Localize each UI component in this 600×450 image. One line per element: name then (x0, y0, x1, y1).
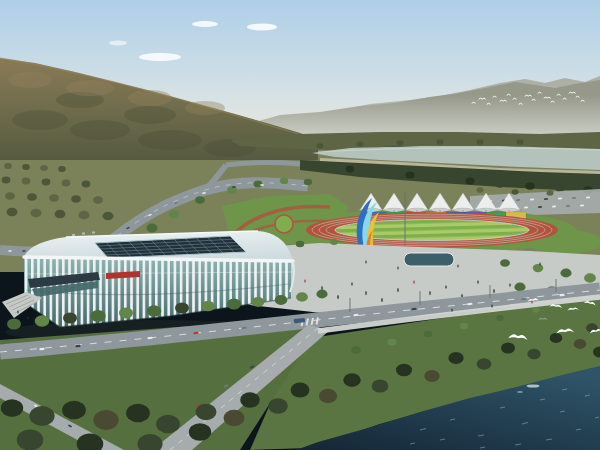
tree (42, 179, 51, 186)
tree (240, 392, 260, 407)
tree (280, 178, 288, 185)
car (566, 205, 570, 207)
tree (316, 290, 327, 299)
tree (1, 399, 23, 417)
sports-complex-rendering (0, 0, 600, 450)
tree (437, 139, 444, 145)
tree (119, 308, 133, 319)
tree (5, 192, 15, 200)
car (8, 250, 11, 251)
tree (126, 404, 150, 423)
tree (291, 383, 310, 398)
tree (147, 305, 162, 317)
person (365, 261, 366, 264)
tree (357, 141, 364, 147)
tree (547, 190, 554, 196)
tree (22, 178, 31, 185)
tree (63, 313, 77, 324)
car (559, 294, 564, 297)
person (337, 295, 338, 299)
person (539, 262, 540, 265)
tree (7, 208, 18, 217)
tree (460, 323, 468, 330)
tree (55, 210, 66, 219)
tree (82, 181, 91, 188)
tree (62, 401, 86, 420)
tree (103, 212, 114, 221)
tree (2, 177, 11, 184)
tree (514, 283, 525, 292)
tree (304, 179, 312, 186)
person (457, 265, 458, 268)
person (429, 291, 430, 294)
tree (317, 143, 324, 149)
car (524, 207, 528, 209)
tree (574, 339, 587, 349)
tree (397, 140, 404, 146)
person (304, 279, 305, 282)
tree (27, 193, 37, 201)
tree (376, 169, 384, 176)
tree (351, 346, 361, 354)
tree (253, 180, 262, 187)
tree (146, 224, 157, 233)
tree (501, 343, 515, 354)
car (232, 186, 236, 188)
person (397, 288, 398, 291)
car (586, 197, 590, 199)
tree (330, 239, 338, 245)
person (381, 298, 382, 302)
tree (62, 180, 71, 187)
person (365, 291, 366, 294)
person (445, 285, 446, 288)
tree (477, 358, 492, 370)
tree (156, 415, 180, 434)
tree (346, 166, 354, 173)
tree (227, 299, 241, 310)
tree (224, 410, 245, 427)
tree (90, 310, 105, 322)
tree (533, 307, 540, 313)
car (39, 348, 44, 351)
car (260, 184, 264, 186)
tree (17, 430, 44, 450)
tree (372, 379, 389, 392)
tree (560, 269, 571, 278)
tree (517, 139, 524, 145)
tree (169, 210, 180, 218)
person (321, 286, 322, 289)
tree (29, 406, 54, 426)
tree (189, 423, 211, 441)
tree (40, 165, 48, 171)
reflecting-pool (404, 253, 454, 266)
tree (93, 410, 118, 430)
tree (387, 338, 396, 345)
tree (448, 352, 463, 364)
tree (396, 364, 412, 377)
tree (196, 404, 217, 421)
tree (424, 331, 432, 338)
person (413, 280, 414, 283)
tree (296, 292, 308, 301)
tree (550, 333, 563, 343)
tree (275, 295, 288, 305)
tree (512, 189, 519, 195)
tree (195, 196, 205, 204)
car (516, 199, 520, 201)
tree (4, 163, 12, 169)
running-track (306, 213, 558, 248)
tree (495, 180, 505, 188)
person (27, 317, 28, 320)
person (493, 289, 494, 292)
tree (22, 164, 30, 170)
rendering-image (0, 0, 600, 450)
tree (500, 259, 510, 267)
tree (477, 187, 484, 193)
person (451, 308, 452, 311)
tree (465, 177, 474, 184)
tree (319, 389, 337, 403)
tree (31, 209, 42, 218)
tree (435, 174, 444, 181)
person (531, 300, 532, 303)
tree (49, 194, 59, 202)
person (17, 311, 18, 314)
car (22, 250, 25, 251)
tree (71, 195, 81, 203)
tree (477, 139, 484, 145)
tree (58, 166, 66, 172)
car (530, 199, 534, 201)
tree (252, 297, 265, 307)
tree (175, 303, 189, 314)
car (552, 206, 556, 208)
tree (35, 315, 50, 327)
tree (268, 398, 288, 413)
car (538, 206, 542, 208)
car (544, 198, 548, 200)
car (572, 197, 576, 199)
tree (525, 182, 535, 190)
tree (7, 319, 21, 330)
tree (533, 264, 544, 272)
person (351, 282, 352, 285)
tree (584, 273, 596, 282)
car (558, 198, 562, 200)
person (397, 267, 398, 270)
person (491, 304, 492, 307)
tree (343, 373, 361, 387)
car (580, 205, 584, 207)
tree (201, 301, 214, 311)
tree (93, 196, 103, 204)
car (521, 298, 526, 301)
tree (296, 241, 304, 248)
tree (424, 370, 439, 382)
tree (555, 184, 565, 192)
tree (405, 171, 414, 178)
tree (316, 163, 324, 170)
tree (496, 315, 504, 321)
person (477, 280, 478, 283)
car (75, 345, 80, 348)
tree (79, 211, 90, 220)
tree (527, 349, 540, 359)
person (509, 283, 510, 286)
